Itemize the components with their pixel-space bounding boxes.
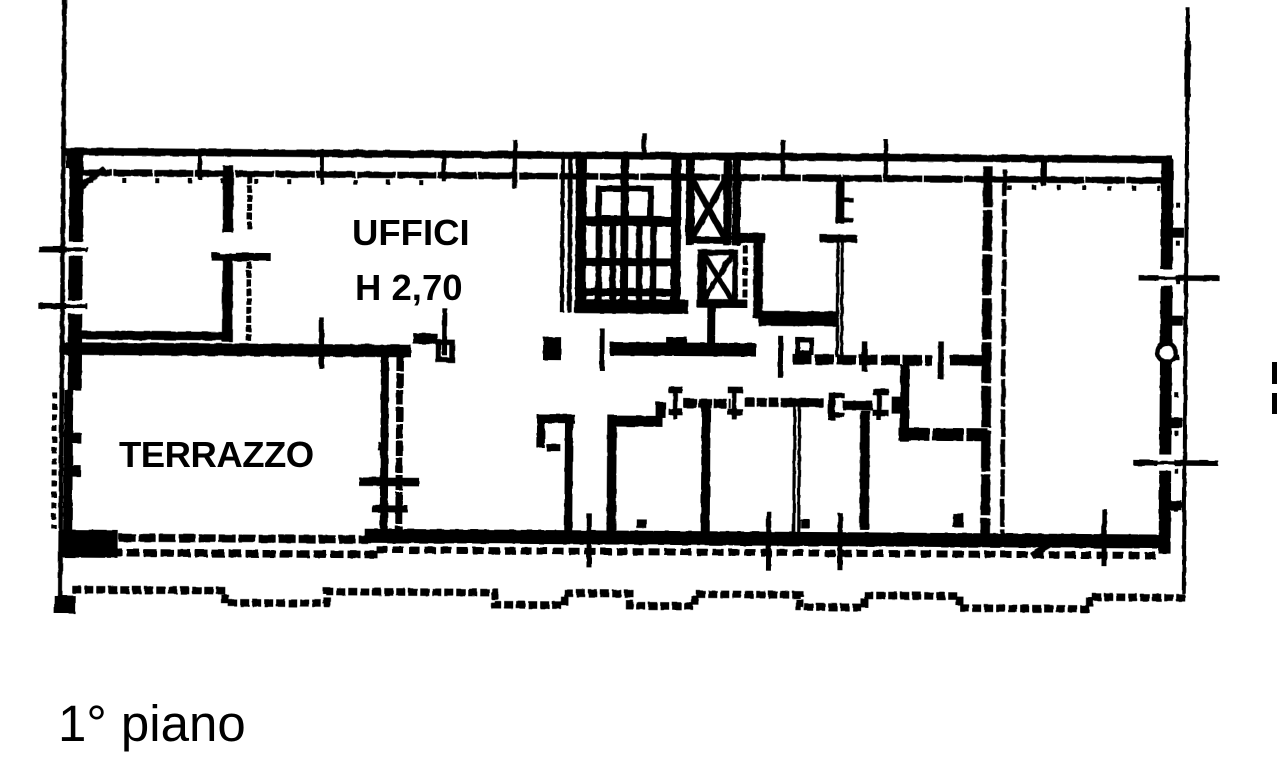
- svg-text:UFFICI: UFFICI: [352, 212, 470, 253]
- svg-text:TERRAZZO: TERRAZZO: [119, 434, 314, 475]
- svg-text:1° piano: 1° piano: [58, 695, 246, 752]
- svg-text:H 2,70: H 2,70: [355, 267, 463, 308]
